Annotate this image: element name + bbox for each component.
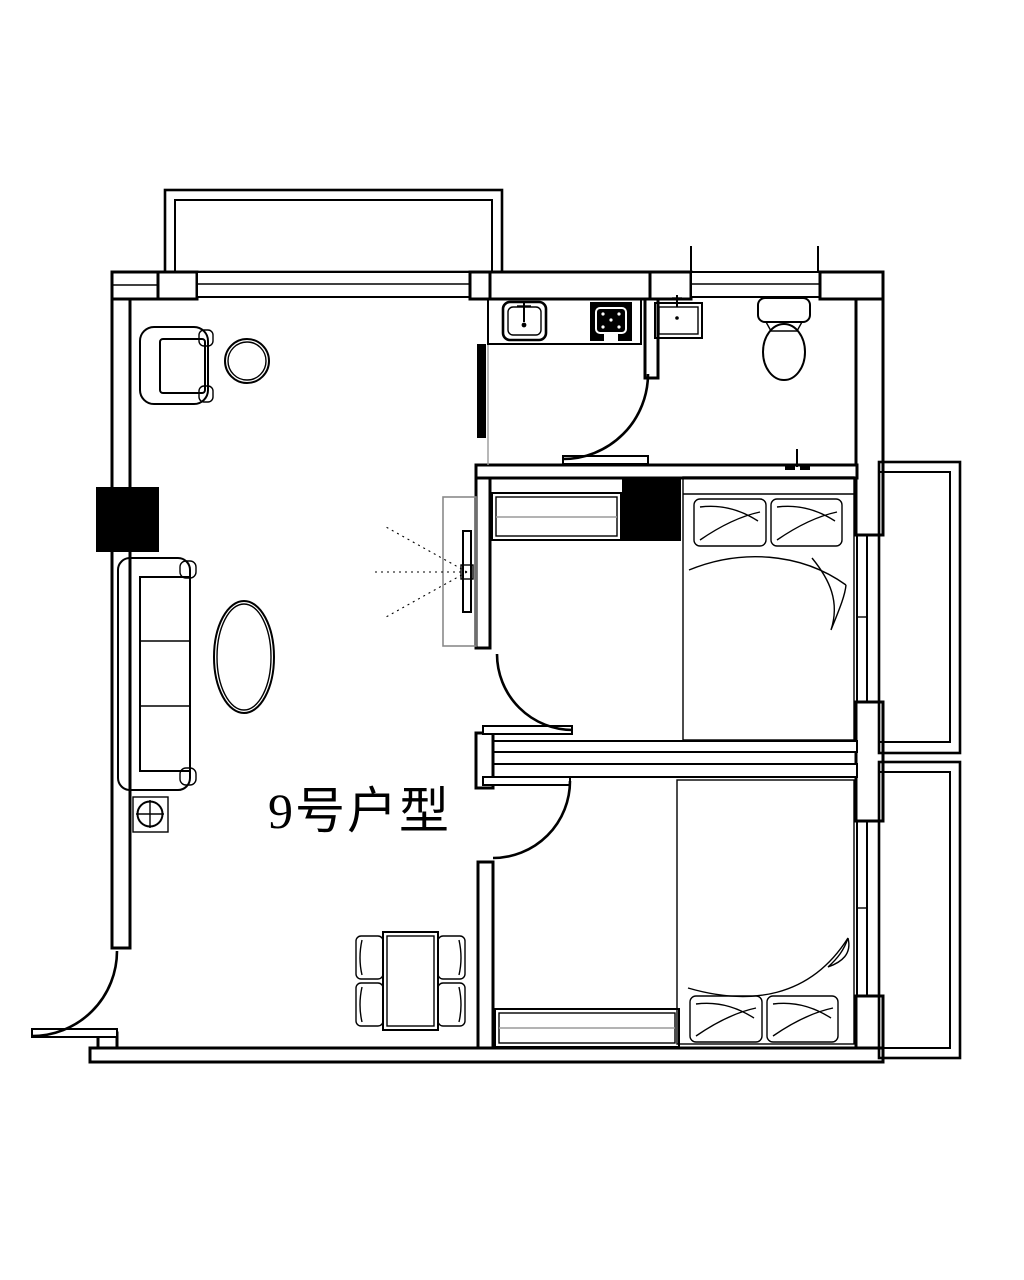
blanket-fold	[689, 557, 846, 585]
tv-cabinet	[373, 497, 476, 646]
blanket-fold	[688, 938, 848, 996]
bay-window	[165, 190, 502, 272]
entry-door-arc	[32, 951, 117, 1036]
pillow	[690, 996, 762, 1042]
balcony-lower	[879, 762, 960, 1058]
window-bedroom1	[857, 535, 867, 702]
unit-title: 9号户型	[268, 783, 451, 839]
structural-column-left	[96, 487, 159, 552]
floor-plan-sheet: 9号户型	[0, 0, 1024, 1280]
bathroom-door-arc	[563, 374, 648, 459]
floor-plan-drawing: 9号户型	[0, 0, 1024, 1280]
interior-walls	[476, 299, 857, 1048]
tv-sight-lines	[373, 527, 467, 617]
balcony-upper	[879, 462, 960, 753]
pillow	[694, 499, 766, 546]
kitchen-stove	[590, 302, 632, 341]
coffee-table	[214, 601, 274, 713]
upper-structure-stubs	[691, 246, 818, 272]
window-bathroom	[691, 272, 820, 297]
entry-door	[32, 951, 117, 1037]
sliding-kitchen-door	[477, 344, 486, 438]
window-bedroom2	[857, 821, 867, 996]
armchair	[140, 327, 213, 404]
wardrobe-bedroom1	[492, 493, 621, 540]
top-wall	[112, 272, 883, 299]
bedroom1-door	[483, 654, 573, 734]
wash-basin	[655, 295, 702, 338]
floor-lamp	[133, 797, 168, 832]
pillow	[767, 996, 838, 1042]
bedroom1-door-arc	[497, 654, 573, 730]
double-bed-2	[677, 780, 854, 1044]
pillow	[771, 499, 842, 546]
toilet	[758, 298, 810, 380]
dining-table-4-chairs	[356, 932, 465, 1030]
bedroom2-door	[483, 777, 570, 858]
bathroom-door	[563, 374, 648, 464]
wardrobe-bedroom2	[495, 1009, 679, 1047]
double-bed-1	[683, 477, 854, 740]
structural-column-middle	[622, 477, 681, 541]
kitchen-sink	[503, 302, 546, 340]
bedroom2-door-arc	[493, 781, 570, 858]
left-wall	[112, 299, 130, 948]
shower-drain	[785, 449, 810, 470]
window-top-left	[197, 272, 470, 297]
round-side-table	[225, 339, 269, 383]
